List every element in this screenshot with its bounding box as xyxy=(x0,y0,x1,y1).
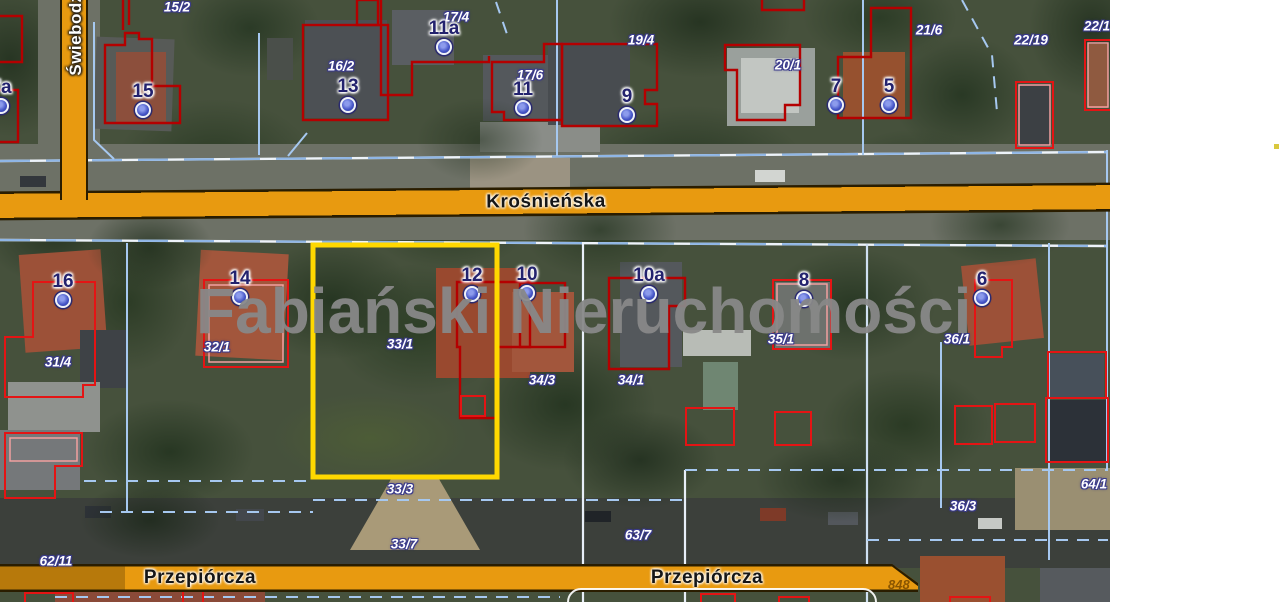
street-name-przepiorcza-left: Przepiórcza xyxy=(144,567,256,589)
marker-dot-icon[interactable] xyxy=(55,292,71,308)
house-number-label: 11 xyxy=(513,79,533,101)
map-application-screenshot: Krośnieńska Świebodzi Przepiórcza Przepi… xyxy=(0,0,1280,602)
street-name-swiebodzinska: Świebodzi xyxy=(62,0,90,118)
street-band-shading xyxy=(0,566,125,590)
parcel-number-label: 63/7 xyxy=(625,528,651,543)
marker-dot-icon[interactable] xyxy=(436,39,452,55)
marker-dot-icon[interactable] xyxy=(515,100,531,116)
parcel-number-label: 16/2 xyxy=(328,59,354,74)
parcel-number-label: 22/1 xyxy=(1084,19,1110,34)
house-number-label: 16 xyxy=(52,271,73,293)
marker-dot-icon[interactable] xyxy=(828,97,844,113)
turning-loop-outline xyxy=(567,588,877,602)
house-number-label: 7a xyxy=(0,77,12,99)
marker-dot-icon[interactable] xyxy=(619,107,635,123)
agency-watermark: Fabiański Nieruchomości xyxy=(196,274,971,348)
parcel-number-label: 20/1 xyxy=(775,58,801,73)
marker-dot-icon[interactable] xyxy=(340,97,356,113)
map-viewport[interactable]: Krośnieńska Świebodzi Przepiórcza Przepi… xyxy=(0,0,1110,602)
yellow-dot-artifact xyxy=(1274,144,1279,149)
parcel-number-label: 19/4 xyxy=(628,33,654,48)
parcel-number-label: 64/1 xyxy=(1081,477,1107,492)
marker-dot-icon[interactable] xyxy=(135,102,151,118)
parcel-number-label: 36/3 xyxy=(950,499,976,514)
parcel-number-label: 21/6 xyxy=(916,23,942,38)
parcel-number-label: 34/1 xyxy=(618,373,644,388)
parcel-number-label: 34/3 xyxy=(529,373,555,388)
parcel-number-label: 31/4 xyxy=(45,355,71,370)
marker-dot-icon[interactable] xyxy=(974,290,990,306)
house-number-label: 15 xyxy=(132,81,153,103)
parcel-number-label: 62/11 xyxy=(40,554,73,569)
street-name-przepiorcza-right: Przepiórcza xyxy=(651,567,763,589)
building-inner-outlines-pink xyxy=(10,43,1108,461)
parcel-number-label: 22/19 xyxy=(1014,33,1048,48)
empty-margin xyxy=(1110,0,1280,602)
house-number-label: 11a xyxy=(429,18,460,40)
street-number-text: 848 xyxy=(888,577,910,592)
street-name-krosnienska: Krośnieńska xyxy=(486,190,606,213)
parcel-number-label: 15/2 xyxy=(164,0,190,15)
house-number-label: 9 xyxy=(622,86,633,108)
parcel-number-label: 33/7 xyxy=(391,537,417,552)
house-number-label: 7 xyxy=(831,76,842,98)
house-number-label: 13 xyxy=(337,76,358,98)
marker-dot-icon[interactable] xyxy=(881,97,897,113)
house-number-label: 5 xyxy=(884,76,895,98)
parcel-number-label: 33/3 xyxy=(387,482,413,497)
house-number-label: 6 xyxy=(977,269,988,291)
